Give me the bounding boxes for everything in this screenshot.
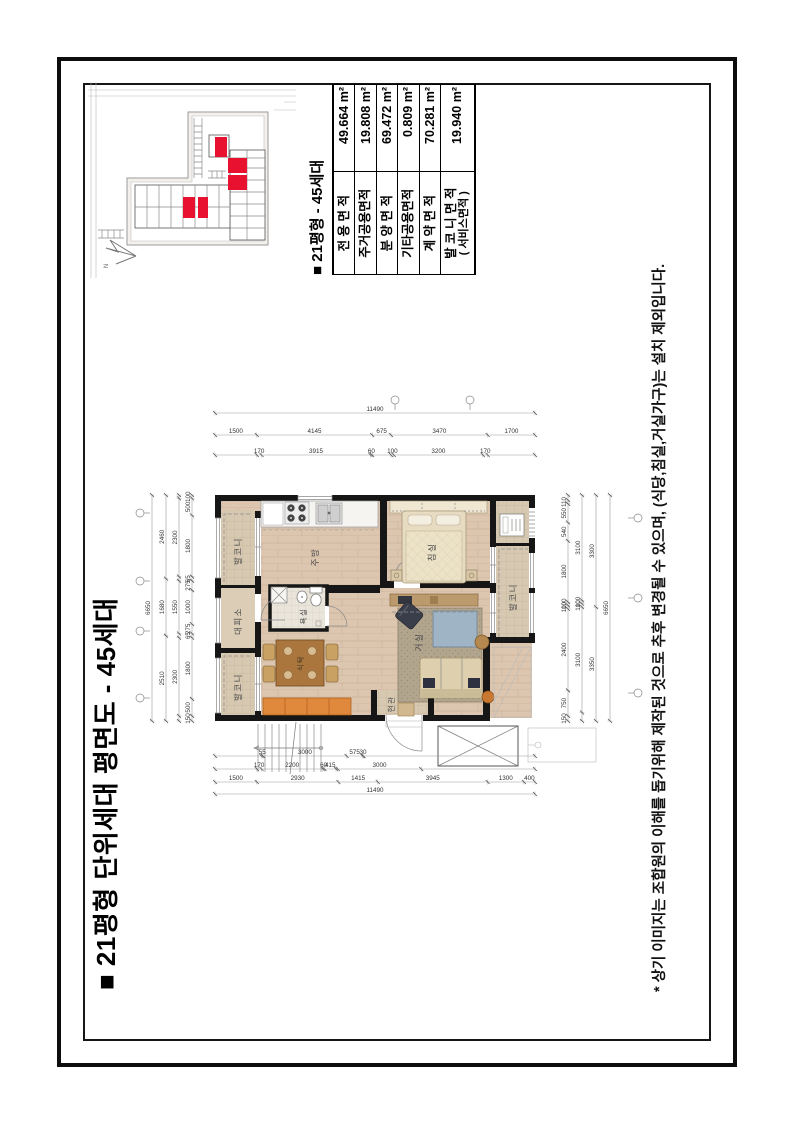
area-value: 49.664 m² (333, 85, 355, 172)
dimension-value: 55 (259, 749, 267, 756)
dimension-value: 3000 (298, 749, 313, 756)
area-table-row: 전 용 면 적49.664 m² (333, 85, 355, 275)
dimension-value: 110 (561, 496, 568, 507)
dimension-value: 150 (561, 713, 568, 724)
boiler-unit (500, 514, 524, 536)
area-table-row: 기타공용면적0.809 m² (398, 85, 419, 275)
dimension-value: 2300 (172, 530, 179, 545)
cushion (423, 678, 435, 688)
dimension-value: 11490 (366, 406, 384, 413)
label-shelter: 대피소 (233, 607, 243, 635)
dimension-value: 500 (185, 501, 192, 512)
floor-plan: 발코니 대피소 발코니 주방 식탁 욕실 거실 침실 발코니 현관 665025… (130, 372, 650, 802)
dimension-value: 1800 (561, 564, 568, 579)
disclaimer: * 상기 이미지는 조합원의 이해를 돕기위해 제작된 것으로 추후 변경될 수… (648, 264, 669, 992)
dimension-value: 540 (561, 526, 568, 537)
washer-icon (271, 587, 287, 603)
dimension-value: 2400 (561, 642, 568, 657)
dimension-value: 60 (368, 448, 376, 455)
stove-icon (285, 502, 309, 524)
area-value: 69.472 m² (376, 85, 397, 172)
glass-table (433, 611, 477, 647)
plant-pot (482, 691, 494, 703)
area-label: 발 코 니 면 적( 서비스면적 ) (440, 172, 475, 275)
dimension-value: 1500 (229, 775, 244, 782)
area-label: 주거공용면적 (355, 172, 376, 275)
dimension-value: 3200 (431, 448, 446, 455)
kitchen-window (298, 495, 332, 501)
dimension-value: 2460 (159, 529, 166, 544)
elevator (438, 726, 518, 766)
area-label: 분 양 면 적 (376, 172, 397, 275)
dimension-value: 2200 (285, 762, 300, 769)
dimension-value: 4145 (307, 428, 322, 435)
dimension-value: 100 (575, 596, 582, 607)
area-table-row: 주거공용면적19.808 m² (355, 85, 376, 275)
area-value: 0.809 m² (398, 85, 419, 172)
dimension-value: 1550 (172, 600, 179, 615)
chair (326, 644, 338, 660)
dimension-value: 550 (561, 507, 568, 518)
dimension-value: 1300 (499, 775, 514, 782)
chair (263, 644, 275, 660)
area-value: 19.940 m² (440, 85, 475, 172)
dimension-value: 675 (376, 428, 387, 435)
cushion (468, 678, 480, 688)
dimension-value: 65 (185, 575, 192, 583)
label-entrance: 현관 (386, 696, 396, 713)
label-living: 거실 (414, 633, 424, 652)
kitchen-counter (261, 501, 378, 530)
dimension-value: 500 (185, 702, 192, 713)
dimension-value: 170 (254, 448, 265, 455)
dimension-value: 750 (561, 697, 568, 708)
label-balcony-bottom: 발코니 (508, 583, 518, 611)
area-label: 기타공용면적 (398, 172, 419, 275)
north-label: N (104, 264, 110, 268)
dimension-value: 400 (524, 775, 535, 782)
nightstand (466, 570, 477, 581)
dimension-value: 100 (561, 598, 568, 609)
dimension-value: 1680 (159, 600, 166, 615)
dimension-value: 100 (387, 448, 398, 455)
area-sublabel: ( 서비스면적 ) (458, 174, 471, 272)
area-label: 전 용 면 적 (333, 172, 355, 275)
pillow (408, 515, 432, 525)
scanned-floorplan-sheet: { "page": { "title": "■ 21평형 단위세대 평면도 - … (0, 0, 794, 1124)
dimension-value: 3000 (372, 762, 387, 769)
dimension-value: 6650 (145, 601, 152, 616)
dimension-value: 3470 (432, 428, 447, 435)
dimension-value: 2300 (172, 669, 179, 684)
dimension-value: 1000 (185, 600, 192, 615)
summary-title: ■ 21평형 - 45세대 (306, 84, 327, 275)
dimension-chain-left: 5530005753017022006041530001500293014153… (213, 749, 537, 797)
dimension-value: 150 (185, 713, 192, 724)
dimension-value: 3350 (589, 657, 596, 672)
label-balcony-top-right: 발코니 (233, 537, 243, 565)
dimension-value: 1800 (185, 538, 192, 553)
dining-set (263, 640, 351, 715)
dimension-value: 100 (185, 491, 192, 502)
dimension-value: 2930 (291, 775, 306, 782)
area-table-row: 계 약 면 적70.281 m² (419, 85, 440, 275)
area-label: 계 약 면 적 (419, 172, 440, 275)
area-table: 전 용 면 적49.664 m²주거공용면적19.808 m²분 양 면 적69… (332, 84, 476, 275)
fridge (263, 503, 283, 525)
dimension-value: 1800 (185, 661, 192, 676)
dimension-chain-bottom: 1507502400100100180054055011031001001003… (561, 493, 612, 724)
label-bathroom: 욕실 (298, 608, 308, 625)
side-table (475, 635, 489, 649)
dimension-value: 6650 (603, 601, 610, 616)
dimension-chain-right: 1703915601003200170150041456753470170011… (213, 406, 537, 458)
chair (326, 666, 338, 682)
landscape-sheet: ■ 21평형 단위세대 평면도 - 45세대 (0, 0, 794, 1124)
chair (263, 666, 275, 682)
label-balcony-top-left: 발코니 (233, 673, 243, 701)
dimension-value: 415 (325, 762, 336, 769)
toilet-icon (310, 587, 322, 606)
shoe-cabinet (398, 703, 414, 716)
label-dining-table: 식탁 (296, 655, 305, 671)
dimension-chain-top: 6650251016802460230015502300150500180065… (145, 491, 194, 724)
dimension-value: 1700 (504, 428, 519, 435)
dimension-value: 170 (254, 762, 265, 769)
area-table-row: 발 코 니 면 적( 서비스면적 )19.940 m² (440, 85, 475, 275)
dimension-value: 3100 (575, 652, 582, 667)
dimension-value: 3100 (575, 540, 582, 555)
site-plan: N (88, 82, 296, 278)
dimension-value: 1415 (351, 775, 366, 782)
pillow (436, 515, 460, 525)
dimension-value: 3945 (426, 775, 441, 782)
page-title: ■ 21평형 단위세대 평면도 - 45세대 (86, 598, 123, 990)
label-bedroom: 침실 (427, 543, 437, 562)
dimension-value: 11490 (366, 787, 384, 794)
dimension-value: 1500 (229, 428, 244, 435)
entry-step (386, 721, 422, 727)
area-value: 70.281 m² (419, 85, 440, 172)
label-kitchen: 주방 (310, 548, 320, 567)
nightstand (391, 570, 402, 581)
area-table-row: 분 양 면 적69.472 m² (376, 85, 397, 275)
dimension-value: 2510 (159, 671, 166, 686)
sofa (420, 658, 482, 698)
dimension-value: 3300 (589, 544, 596, 559)
washbasin-icon (297, 591, 307, 603)
entrance-door (385, 715, 423, 751)
dimension-value: 3915 (309, 448, 324, 455)
dimension-value: 275 (185, 623, 192, 634)
area-summary: ■ 21평형 - 45세대 전 용 면 적49.664 m²주거공용면적19.8… (306, 84, 476, 275)
window-top-wall (215, 518, 221, 713)
sink-icon (316, 503, 342, 524)
area-value: 19.808 m² (355, 85, 376, 172)
dimension-value: 30 (360, 749, 368, 756)
dimension-value: 170 (480, 448, 491, 455)
